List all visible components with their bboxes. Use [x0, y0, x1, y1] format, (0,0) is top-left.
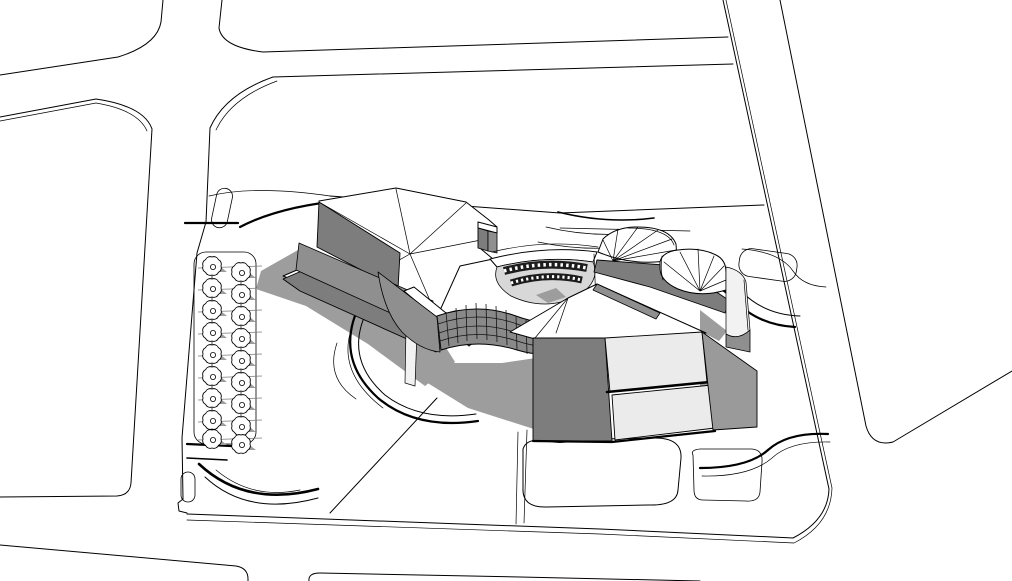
entry-drive-arc-upper — [209, 191, 330, 197]
road-edge-south-left — [0, 545, 248, 581]
tree — [203, 367, 227, 386]
site-plan-drawing: Aerial hidden-line rendering of a cultur… — [0, 0, 1012, 581]
tree — [232, 307, 256, 326]
tree — [203, 411, 227, 430]
tree — [232, 329, 256, 348]
road-edge-west-site — [206, 128, 210, 222]
tree — [232, 351, 256, 370]
parking-end-line2 — [187, 458, 227, 460]
north-terrace-arc-1 — [558, 212, 654, 220]
planting-bed-south — [523, 438, 681, 507]
tree — [232, 263, 256, 282]
road-edge-west-outer — [0, 99, 152, 497]
tree — [232, 417, 256, 436]
southwest-ramp-arc-inner — [216, 470, 300, 493]
road-edge-south-right — [309, 573, 700, 581]
road-edge-northwest-upper — [0, 0, 163, 75]
tree — [232, 373, 256, 392]
notch-face-shaded — [478, 228, 488, 251]
terrace-arc-4 — [334, 343, 356, 399]
southeast-walk-thin — [702, 442, 830, 476]
tree — [203, 301, 227, 320]
southeast-walk-bold — [700, 434, 828, 468]
tree — [203, 345, 227, 364]
roof-notch — [478, 222, 497, 253]
tree — [203, 323, 227, 342]
road-curb-west-inner — [0, 103, 147, 131]
site-edge-west — [178, 222, 206, 513]
planting-bed-northeast — [737, 247, 798, 283]
wedge-wall-shaded — [533, 338, 612, 441]
tree — [232, 435, 256, 454]
parking-area — [194, 252, 262, 453]
tree — [232, 285, 256, 304]
tree — [203, 257, 227, 276]
road-edge-diagonal-right — [780, 0, 1012, 443]
roundabout-arc-outer — [210, 77, 273, 128]
tree — [203, 279, 227, 298]
model-viewport: Aerial hidden-line rendering of a cultur… — [0, 0, 1012, 581]
notch-face-mid — [488, 231, 497, 253]
tree — [232, 395, 256, 414]
road-edge-north-upper — [219, 0, 728, 52]
round-tower — [726, 267, 750, 337]
paving-diagonal-joint — [330, 398, 437, 513]
tree — [203, 389, 227, 408]
road-edge-north-lower — [273, 64, 733, 77]
